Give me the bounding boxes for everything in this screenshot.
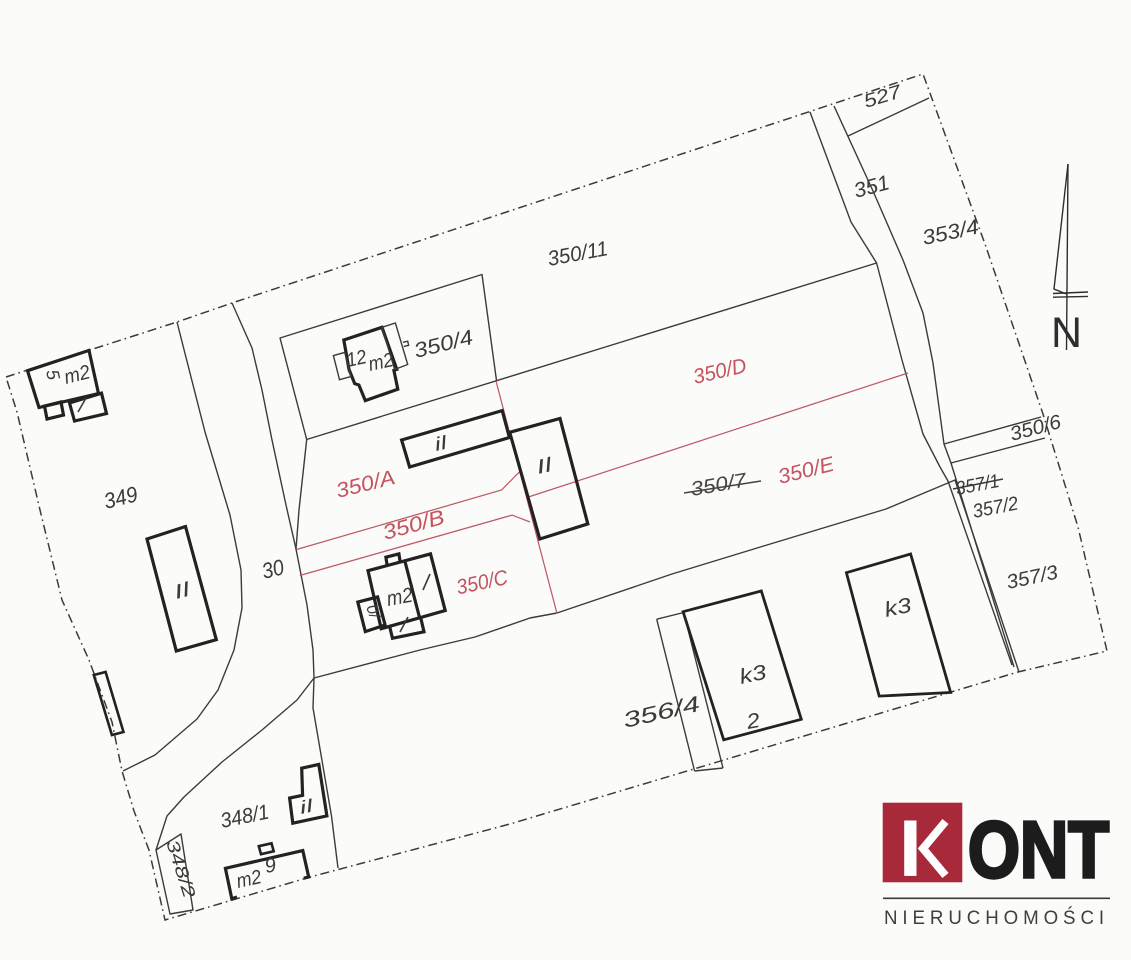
svg-text:il: il xyxy=(433,433,450,456)
svg-text:350/C: 350/C xyxy=(454,566,510,599)
svg-text:350/A: 350/A xyxy=(334,466,398,503)
svg-text:30: 30 xyxy=(259,554,287,584)
svg-text:Il: Il xyxy=(534,454,554,479)
svg-text:12: 12 xyxy=(344,346,368,372)
svg-text:350/7: 350/7 xyxy=(689,469,749,501)
svg-text:k3: k3 xyxy=(737,661,769,689)
svg-text:350/E: 350/E xyxy=(776,452,838,488)
svg-text:348/2: 348/2 xyxy=(162,837,200,901)
svg-text:ONT: ONT xyxy=(968,805,1109,894)
svg-text:NIERUCHOMOŚCI: NIERUCHOMOŚCI xyxy=(884,907,1109,929)
svg-text:350/4: 350/4 xyxy=(412,326,476,363)
svg-text:356/4: 356/4 xyxy=(621,691,703,733)
svg-text:350/B: 350/B xyxy=(380,506,447,545)
svg-text:357/2: 357/2 xyxy=(971,493,1020,523)
svg-text:2: 2 xyxy=(744,709,762,734)
svg-text:m2: m2 xyxy=(385,584,415,611)
svg-text:353/4: 353/4 xyxy=(920,216,981,250)
svg-text:N: N xyxy=(1051,309,1082,357)
svg-text:350/D: 350/D xyxy=(691,354,749,389)
svg-text:m2: m2 xyxy=(234,866,263,893)
svg-text:357/1: 357/1 xyxy=(954,471,1001,500)
svg-text:k3: k3 xyxy=(882,594,914,622)
svg-text:350/11: 350/11 xyxy=(546,237,610,271)
svg-text:Il: Il xyxy=(172,579,193,604)
svg-text:m2: m2 xyxy=(366,349,395,376)
svg-text:351: 351 xyxy=(851,171,892,203)
svg-text:527: 527 xyxy=(861,81,905,113)
svg-text:349: 349 xyxy=(101,481,140,513)
svg-text:m2: m2 xyxy=(62,361,93,389)
svg-text:357/3: 357/3 xyxy=(1004,562,1059,594)
svg-text:il: il xyxy=(298,795,316,818)
svg-text:348/1: 348/1 xyxy=(218,801,271,833)
svg-text:5: 5 xyxy=(42,368,64,383)
